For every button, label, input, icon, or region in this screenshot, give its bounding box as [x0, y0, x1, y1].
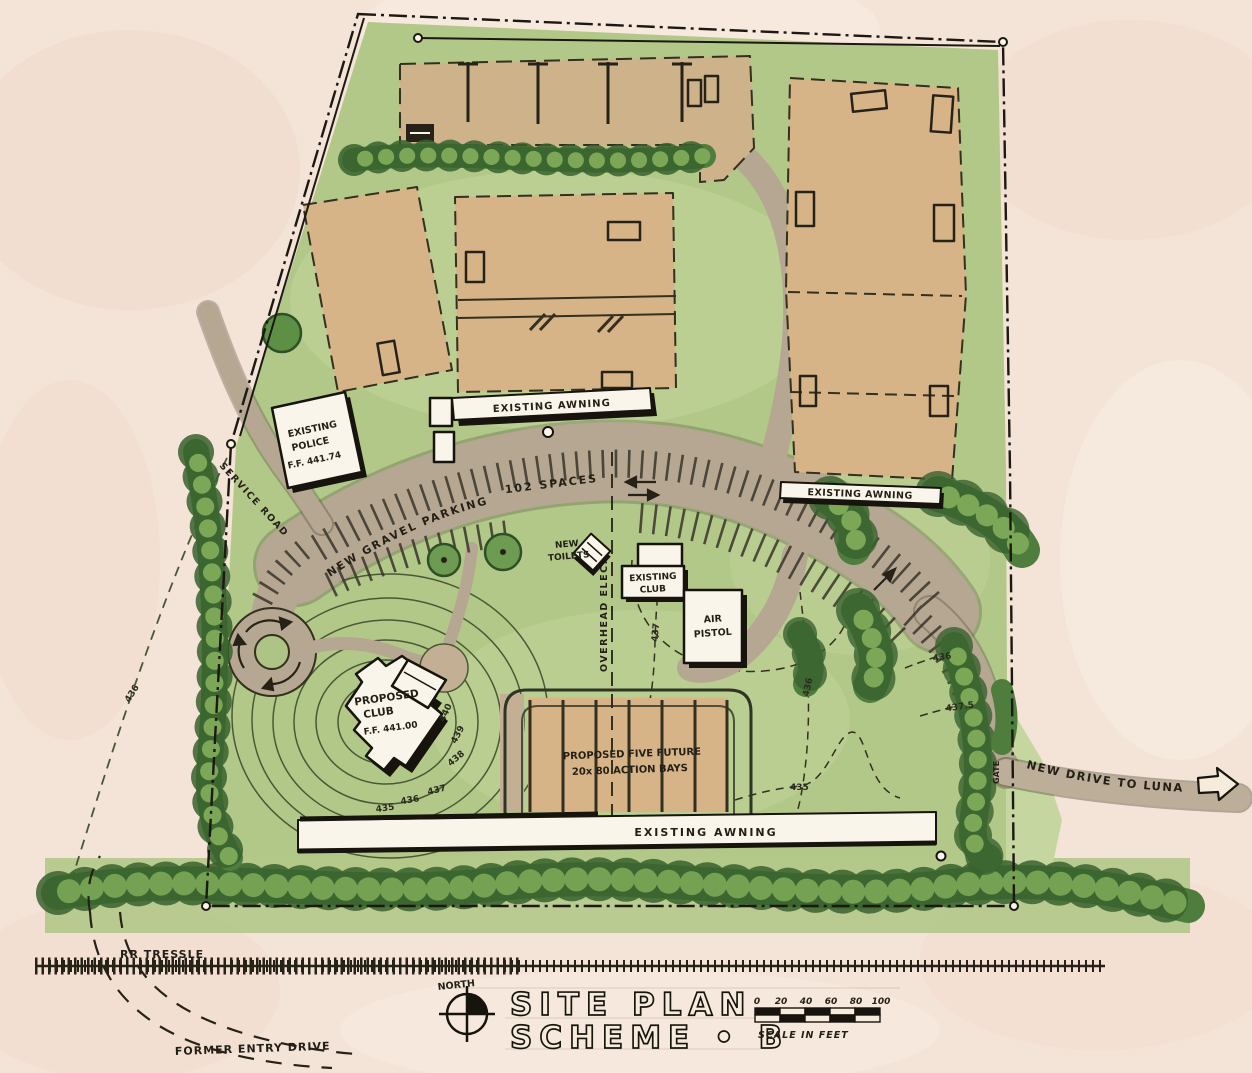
scale-tick-60: 60 [825, 997, 838, 1007]
contour-435-bays: 435 [790, 783, 809, 793]
air-pistol-building: AIR PISTOL [684, 590, 747, 668]
sheet-title-line2: SCHEME • B [510, 1020, 789, 1056]
scale-caption: SCALE IN FEET [758, 1030, 849, 1041]
scale-tick-20: 20 [775, 997, 788, 1007]
contour-437-vertical: 437 [651, 623, 663, 643]
rr-tressle-label: RR TRESSLE [120, 948, 204, 961]
scale-tick-100: 100 [872, 997, 891, 1007]
existing-club-label-2: CLUB [640, 584, 667, 595]
scale-tick-40: 40 [799, 997, 813, 1007]
awning-bottom-label: EXISTING AWNING [634, 826, 777, 839]
site-plan-drawing: OVERHEAD ELEC. [0, 0, 1252, 1073]
scale-tick-0: 0 [754, 997, 760, 1007]
tree-cluster-east-c [858, 610, 876, 686]
range-right [786, 78, 966, 480]
range-center [455, 193, 676, 392]
svg-text:GATE: GATE [992, 761, 1001, 784]
small-shed-b [434, 432, 454, 462]
gate-label: GATE [992, 761, 1001, 784]
toilets-label-1: NEW [555, 539, 579, 551]
small-shed-a [430, 398, 452, 426]
site-plan-sheet: OVERHEAD ELEC. [0, 0, 1252, 1073]
scale-bar-cells [755, 1008, 880, 1022]
scale-tick-80: 80 [850, 997, 863, 1007]
air-pistol-label-1: AIR [703, 613, 723, 625]
svg-text:OVERHEAD ELEC.: OVERHEAD ELEC. [599, 559, 610, 672]
tree-row-top-hedge [354, 155, 704, 160]
tree-cluster-east-d [800, 634, 811, 684]
sheet-title-line1: SITE PLAN [510, 987, 752, 1023]
overhead-elec-label: OVERHEAD ELEC. [599, 559, 610, 672]
